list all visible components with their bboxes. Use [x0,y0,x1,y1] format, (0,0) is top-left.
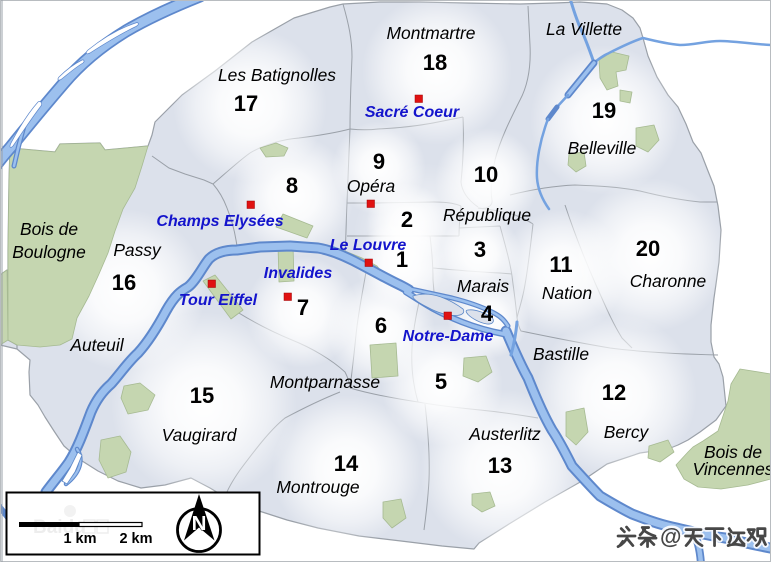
svg-text:Montrouge: Montrouge [276,477,359,497]
svg-text:19: 19 [592,98,616,123]
svg-text:Boulogne: Boulogne [12,242,86,262]
svg-text:Montparnasse: Montparnasse [270,372,381,392]
svg-text:Bercy: Bercy [604,422,650,442]
svg-text:Vincennes: Vincennes [693,459,771,479]
svg-text:Tour Eiffel: Tour Eiffel [179,292,258,309]
svg-text:10: 10 [474,162,498,187]
svg-text:Bastille: Bastille [533,344,589,364]
svg-text:14: 14 [334,451,359,476]
svg-text:7: 7 [297,295,309,320]
svg-text:2: 2 [401,207,413,232]
svg-text:4: 4 [481,301,494,326]
svg-text:20: 20 [636,236,660,261]
svg-text:1 km: 1 km [63,531,96,547]
svg-text:Austerlitz: Austerlitz [468,424,541,444]
svg-text:Bois de: Bois de [20,219,78,239]
svg-text:Belleville: Belleville [568,138,637,158]
svg-text:Vaugirard: Vaugirard [162,425,238,445]
svg-text:Le Louvre: Le Louvre [330,237,407,254]
svg-text:Passy: Passy [113,240,162,260]
svg-text:6: 6 [375,313,387,338]
svg-text:Auteuil: Auteuil [69,335,124,355]
svg-text:Marais: Marais [457,276,509,296]
svg-text:9: 9 [373,149,385,174]
svg-text:5: 5 [435,369,447,394]
svg-text:18: 18 [423,50,447,75]
svg-text:17: 17 [234,91,258,116]
svg-text:La Villette: La Villette [546,19,622,39]
svg-text:Notre-Dame: Notre-Dame [403,328,494,345]
svg-text:13: 13 [488,453,512,478]
svg-text:@: @ [660,524,681,549]
svg-text:11: 11 [549,252,572,277]
svg-text:Opéra: Opéra [347,176,396,196]
svg-text:République: République [443,205,531,225]
svg-text:Invalides: Invalides [264,265,333,282]
svg-text:Montmartre: Montmartre [387,23,476,43]
svg-text:12: 12 [602,380,626,405]
svg-text:16: 16 [112,270,136,295]
svg-text:15: 15 [190,383,214,408]
svg-text:8: 8 [286,173,298,198]
svg-text:Champs Elysées: Champs Elysées [156,213,283,230]
svg-text:3: 3 [474,237,486,262]
svg-text:Nation: Nation [542,283,592,303]
svg-text:N: N [192,512,207,535]
svg-text:Les Batignolles: Les Batignolles [218,65,336,85]
svg-text:Sacré Coeur: Sacré Coeur [365,104,460,121]
svg-text:Charonne: Charonne [630,271,707,291]
svg-text:2 km: 2 km [119,531,152,547]
